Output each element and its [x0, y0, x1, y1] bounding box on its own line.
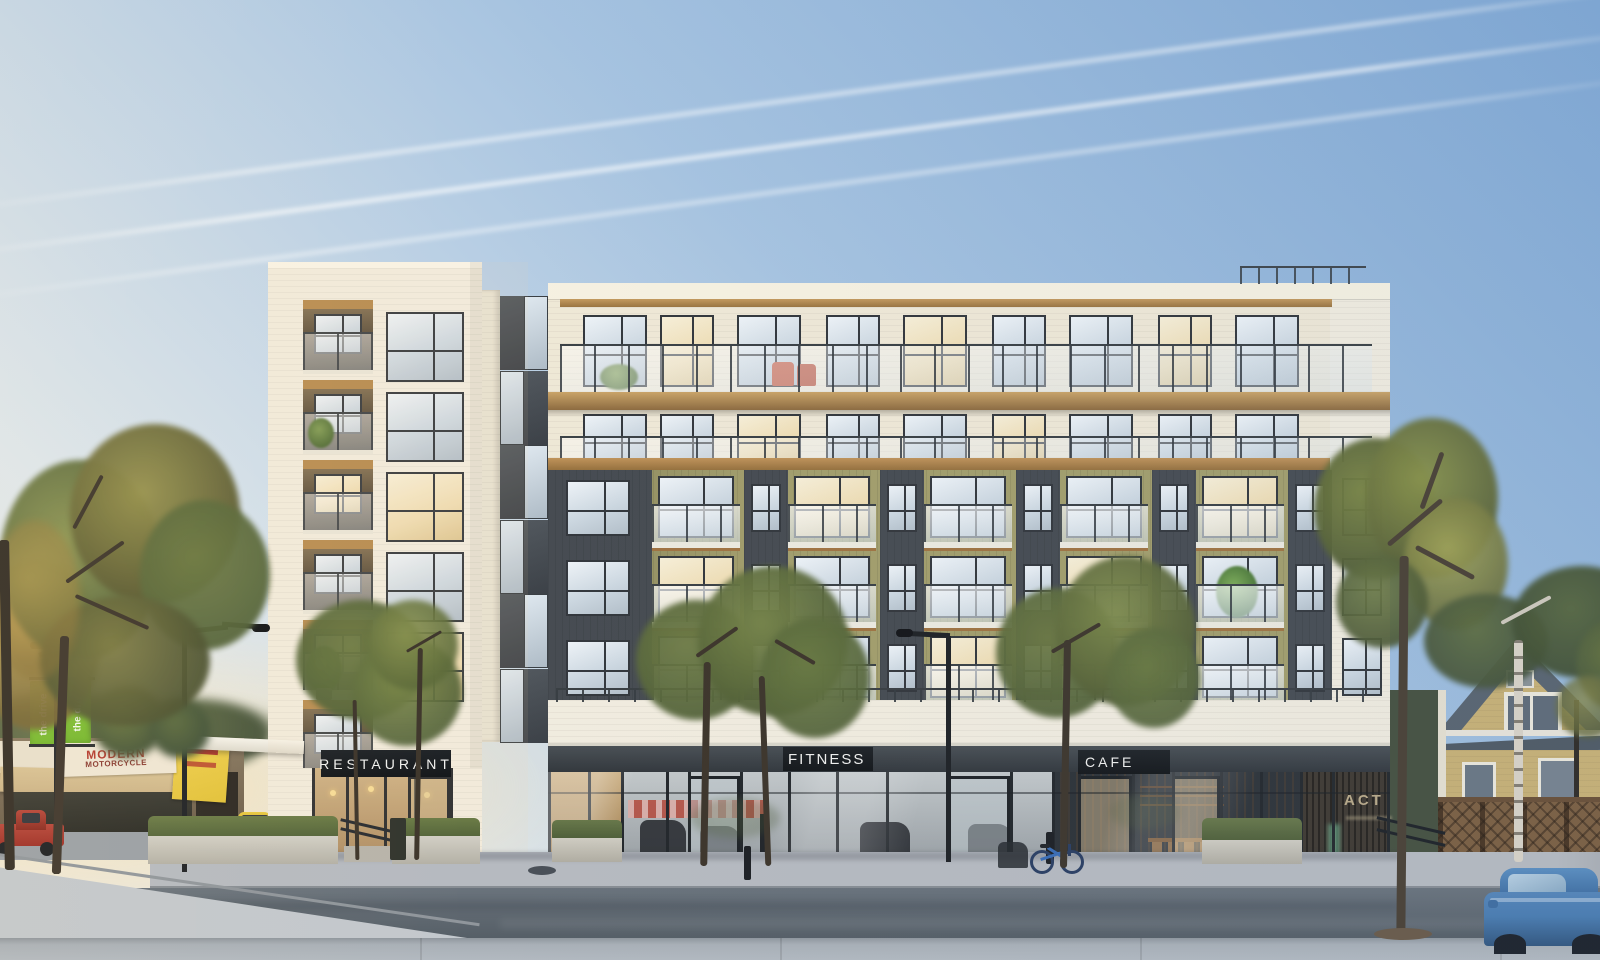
car-highlight [1490, 898, 1600, 902]
foreground-car-layer [0, 0, 1600, 960]
car-wheel [1572, 934, 1600, 954]
architectural-rendering-scene: RESTAURANT FITNESS CAFE ACT the drive th… [0, 0, 1600, 960]
car-wheel [1494, 934, 1526, 954]
car-mirror [1488, 900, 1498, 908]
blue-car [1484, 866, 1600, 960]
car-windshield [1508, 874, 1566, 894]
